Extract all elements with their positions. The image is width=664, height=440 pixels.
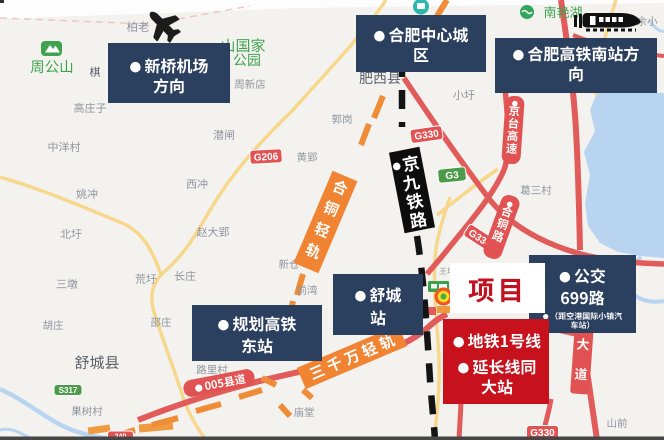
svg-text:S317: S317 bbox=[59, 386, 78, 395]
svg-text:G206: G206 bbox=[254, 151, 279, 163]
svg-text:G3: G3 bbox=[445, 170, 460, 182]
